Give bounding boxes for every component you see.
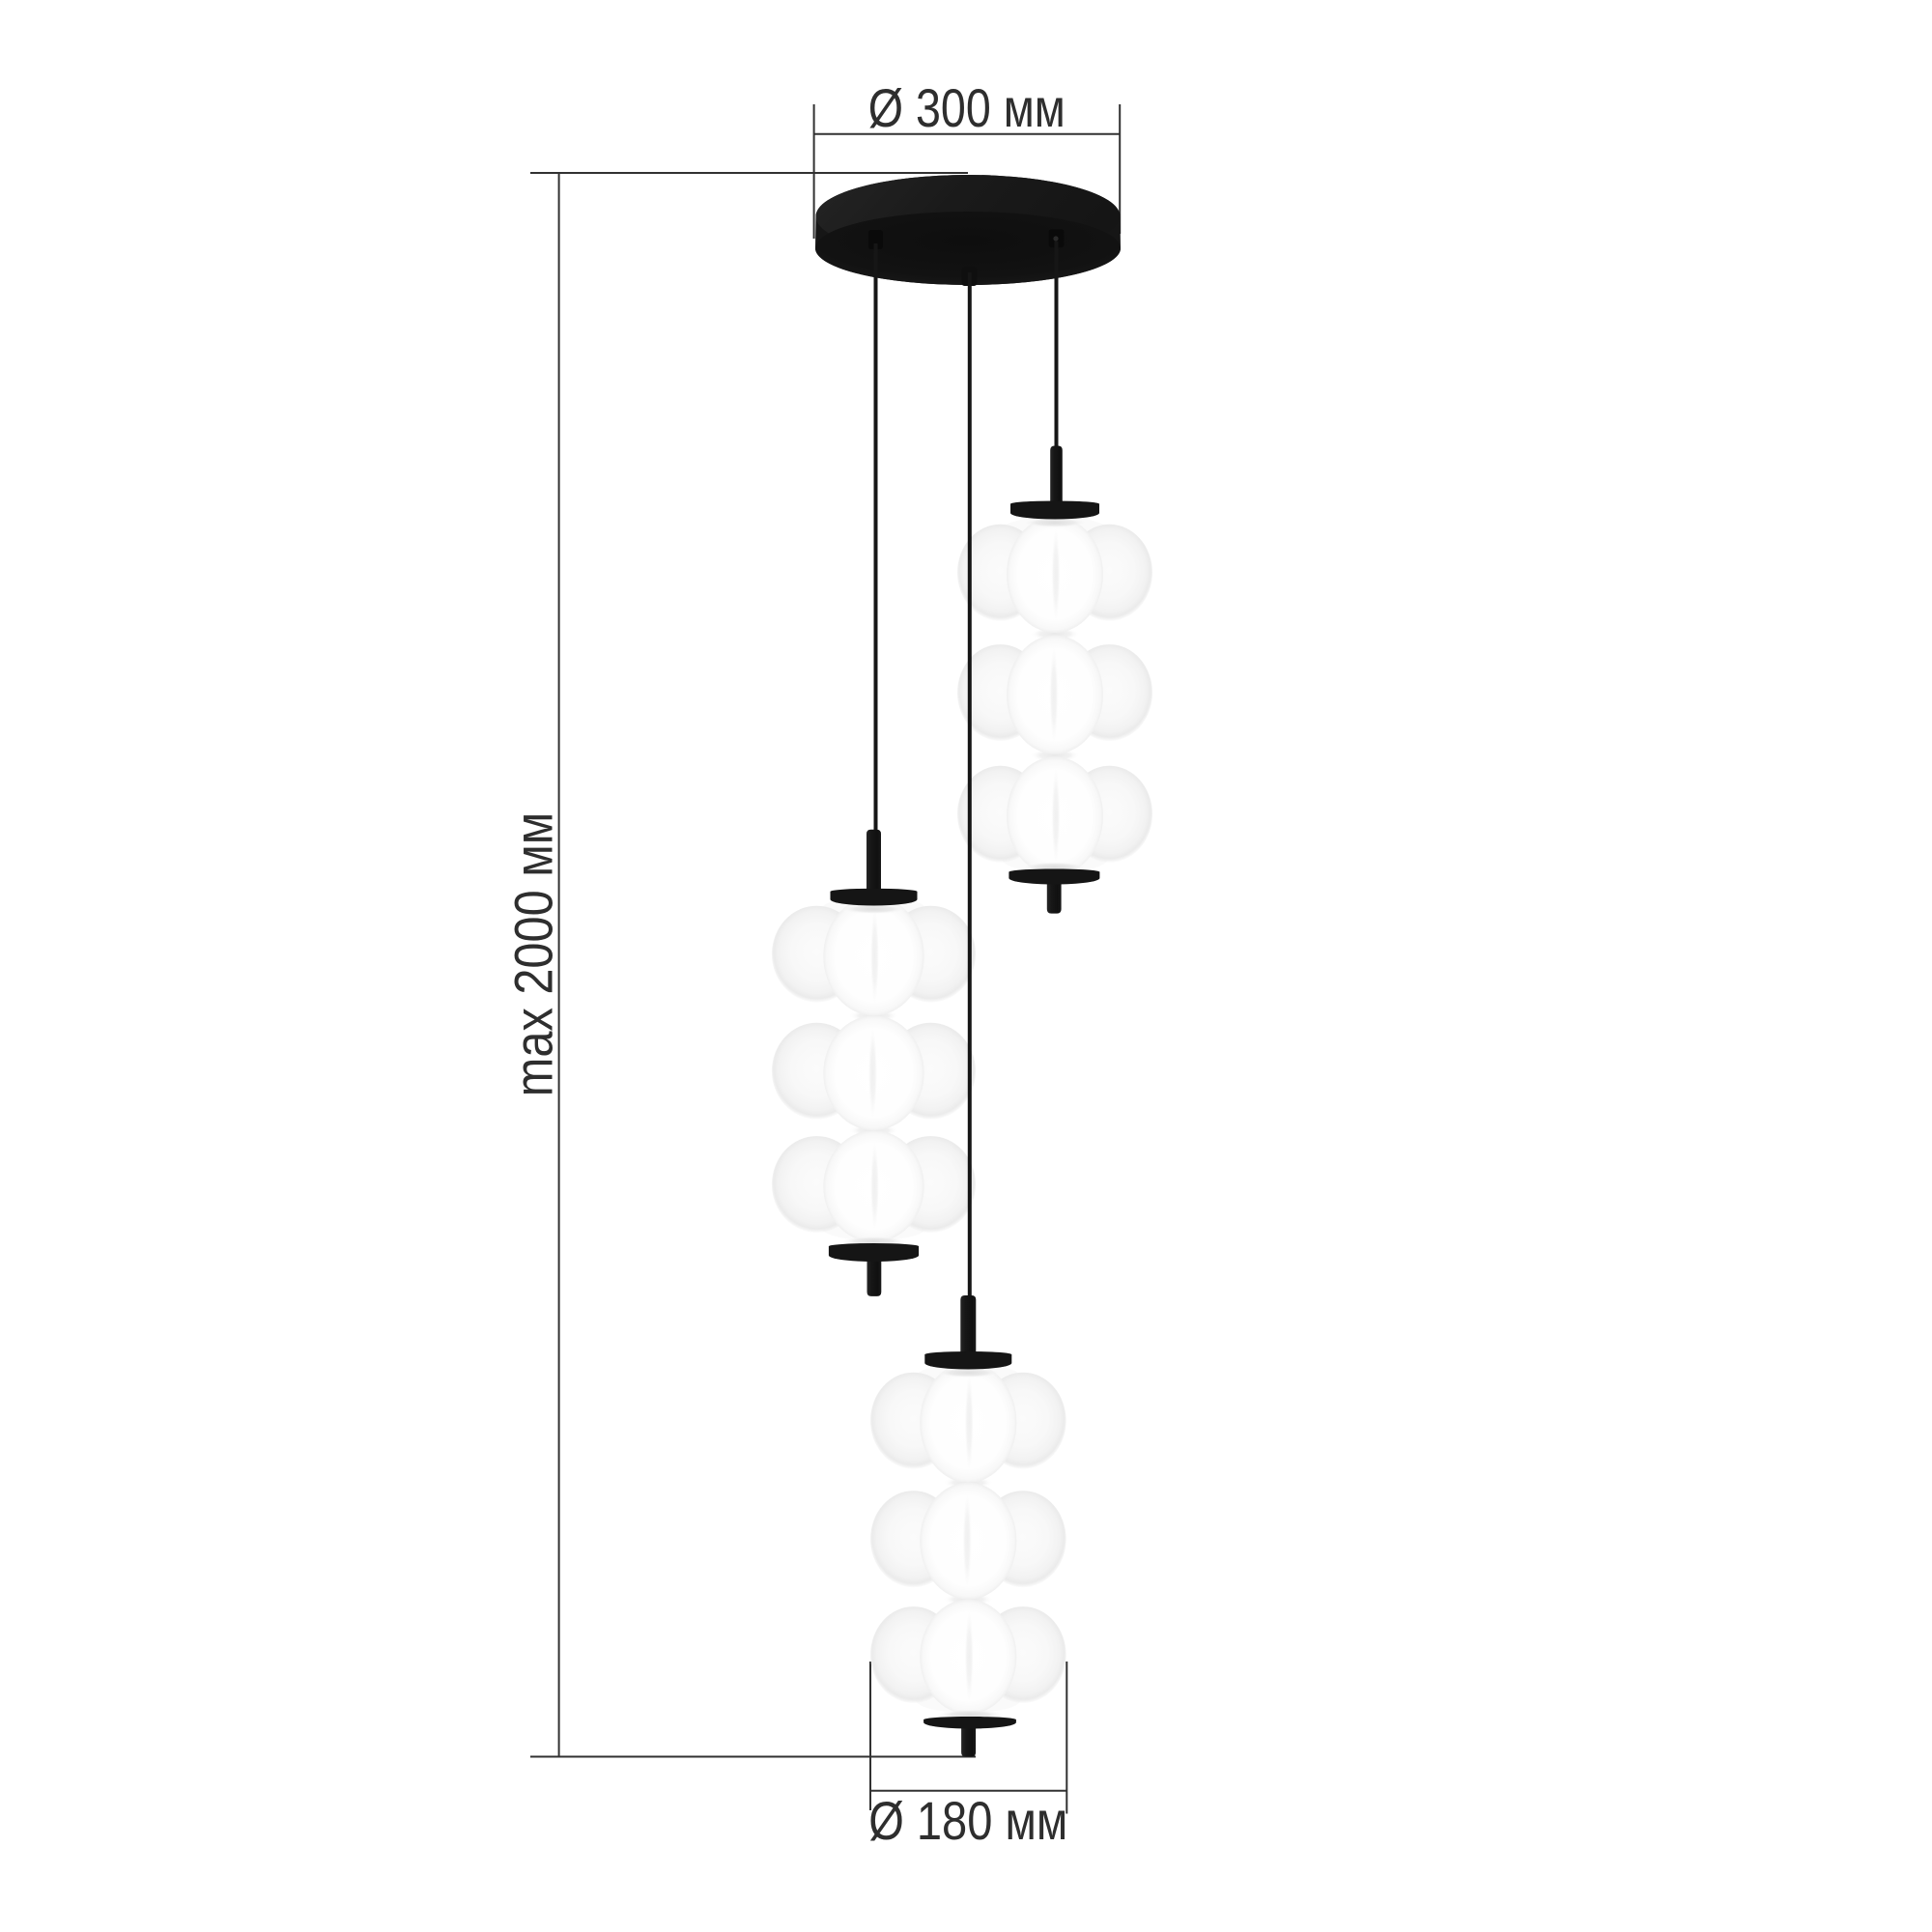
- svg-text:max 2000 мм: max 2000 мм: [503, 812, 563, 1096]
- svg-text:Ø 180 мм: Ø 180 мм: [868, 1791, 1067, 1851]
- svg-text:Ø 300 мм: Ø 300 мм: [868, 78, 1065, 138]
